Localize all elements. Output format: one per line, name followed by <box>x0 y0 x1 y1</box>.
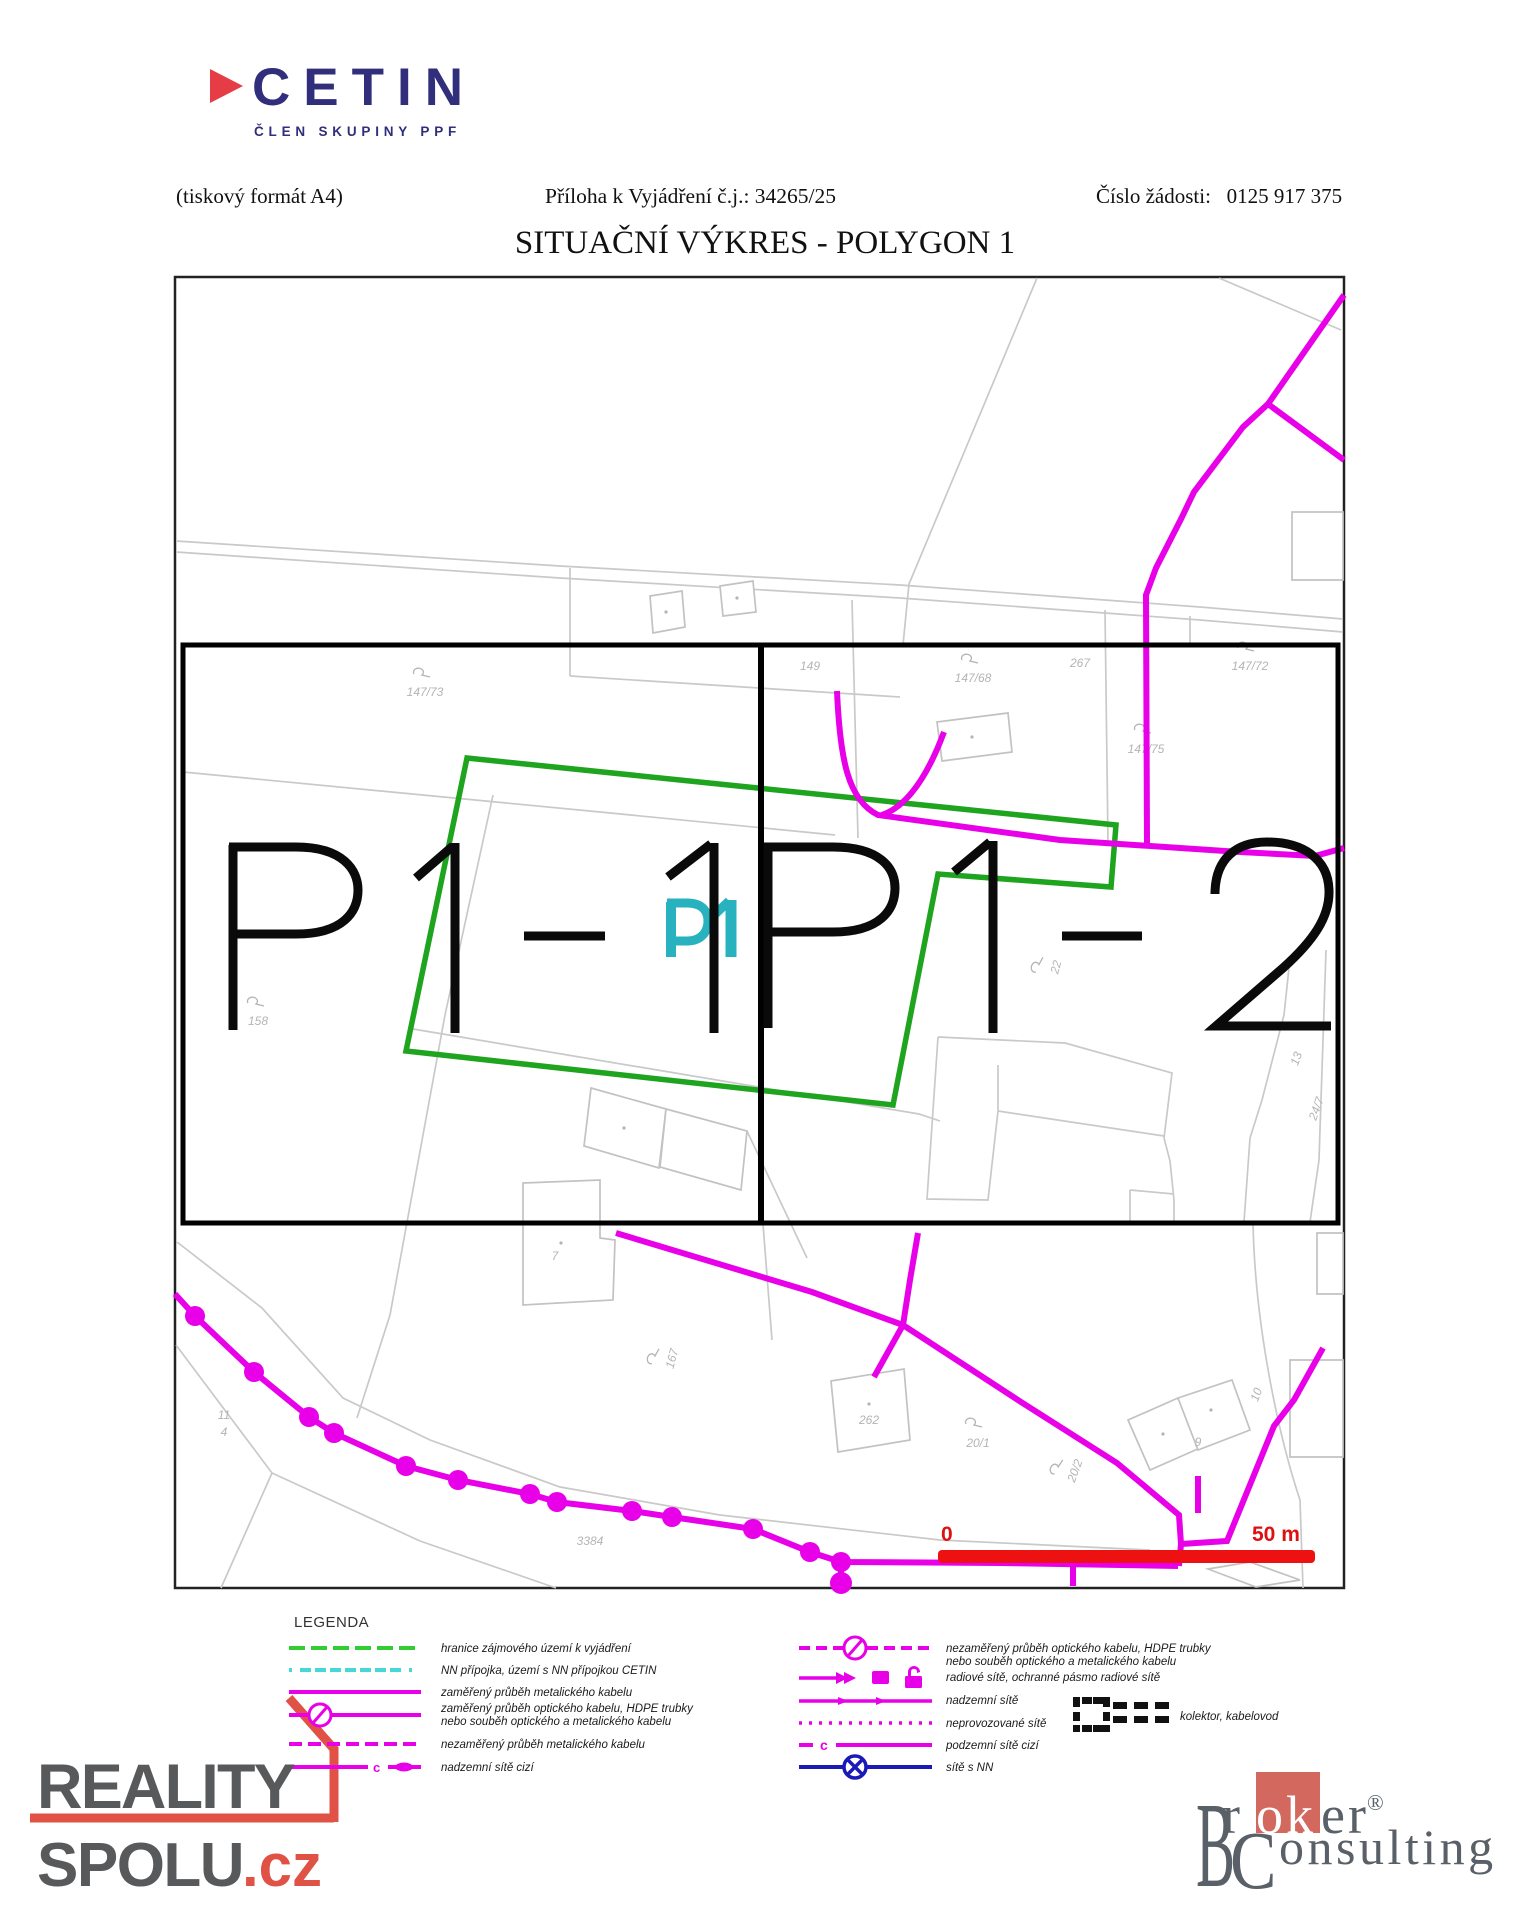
svg-text:nebo souběh optického a metali: nebo souběh optického a metalického kabe… <box>441 1716 672 1728</box>
svg-text:158: 158 <box>248 1014 268 1028</box>
svg-text:SPOLU: SPOLU <box>37 1831 243 1900</box>
svg-text:ČLEN SKUPINY PPF: ČLEN SKUPINY PPF <box>254 124 461 139</box>
svg-text:nebo souběh optického a metali: nebo souběh optického a metalického kabe… <box>946 1656 1177 1668</box>
svg-text:50 m: 50 m <box>1252 1523 1300 1546</box>
svg-text:nadzemní sítě: nadzemní sítě <box>946 1695 1018 1707</box>
svg-text:REALITY: REALITY <box>37 1752 295 1822</box>
svg-text:zaměřený průběh metalického ka: zaměřený průběh metalického kabelu <box>440 1687 633 1699</box>
svg-text:3384: 3384 <box>577 1534 604 1548</box>
svg-text:kolektor, kabelovod: kolektor, kabelovod <box>1180 1711 1279 1723</box>
svg-text:podzemní sítě cizí: podzemní sítě cizí <box>945 1740 1040 1752</box>
svg-text:hranice zájmového území k vyjá: hranice zájmového území k vyjádření <box>441 1643 633 1655</box>
svg-text:®: ® <box>1367 1790 1384 1815</box>
svg-text:sítě s NN: sítě s NN <box>946 1762 994 1774</box>
svg-text:.cz: .cz <box>242 1832 322 1899</box>
svg-text:neprovozované sítě: neprovozované sítě <box>946 1718 1046 1730</box>
svg-text:11: 11 <box>218 1408 230 1422</box>
svg-text:147/73: 147/73 <box>407 685 444 699</box>
svg-text:Číslo žádosti: 0125 917 375: Číslo žádosti: 0125 917 375 <box>1096 184 1342 208</box>
svg-text:c: c <box>373 1760 380 1775</box>
svg-text:9: 9 <box>1195 1435 1202 1449</box>
svg-text:149: 149 <box>800 659 820 673</box>
svg-text:nadzemní sítě cizí: nadzemní sítě cizí <box>441 1762 535 1774</box>
svg-text:147/72: 147/72 <box>1232 659 1269 673</box>
svg-text:SITUAČNÍ VÝKRES - POLYGON 1: SITUAČNÍ VÝKRES - POLYGON 1 <box>515 223 1015 261</box>
svg-text:147/68: 147/68 <box>955 671 992 685</box>
svg-text:CETIN: CETIN <box>252 58 476 117</box>
svg-text:zaměřený průběh optického kabe: zaměřený průběh optického kabelu, HDPE t… <box>440 1703 694 1715</box>
svg-text:262: 262 <box>858 1413 879 1427</box>
svg-text:267: 267 <box>1069 656 1091 670</box>
svg-text:LEGENDA: LEGENDA <box>294 1614 369 1631</box>
svg-text:Příloha k Vyjádření č.j.: 3426: Příloha k Vyjádření č.j.: 34265/25 <box>545 184 836 208</box>
svg-text:nezaměřený průběh metalického: nezaměřený průběh metalického kabelu <box>441 1739 646 1751</box>
svg-text:nezaměřený průběh optického ka: nezaměřený průběh optického kabelu, HDPE… <box>946 1643 1212 1655</box>
svg-text:4: 4 <box>221 1425 228 1439</box>
svg-text:c: c <box>820 1737 828 1753</box>
svg-text:0: 0 <box>941 1523 953 1546</box>
svg-text:radiové sítě, ochranné pásmo r: radiové sítě, ochranné pásmo radiové sít… <box>946 1672 1160 1684</box>
svg-text:20/1: 20/1 <box>965 1436 989 1450</box>
svg-text:onsulting: onsulting <box>1279 1819 1497 1875</box>
svg-text:NN přípojka, území s NN přípoj: NN přípojka, území s NN přípojkou CETIN <box>441 1665 657 1677</box>
svg-text:C: C <box>1230 1814 1276 1906</box>
svg-text:(tiskový formát A4): (tiskový formát A4) <box>176 184 343 208</box>
